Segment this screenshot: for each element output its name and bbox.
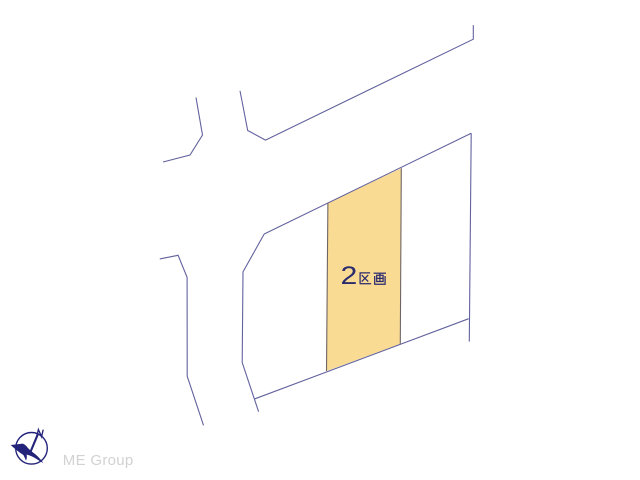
svg-text:2: 2 — [341, 261, 358, 289]
svg-text:ME Group: ME Group — [63, 452, 134, 469]
